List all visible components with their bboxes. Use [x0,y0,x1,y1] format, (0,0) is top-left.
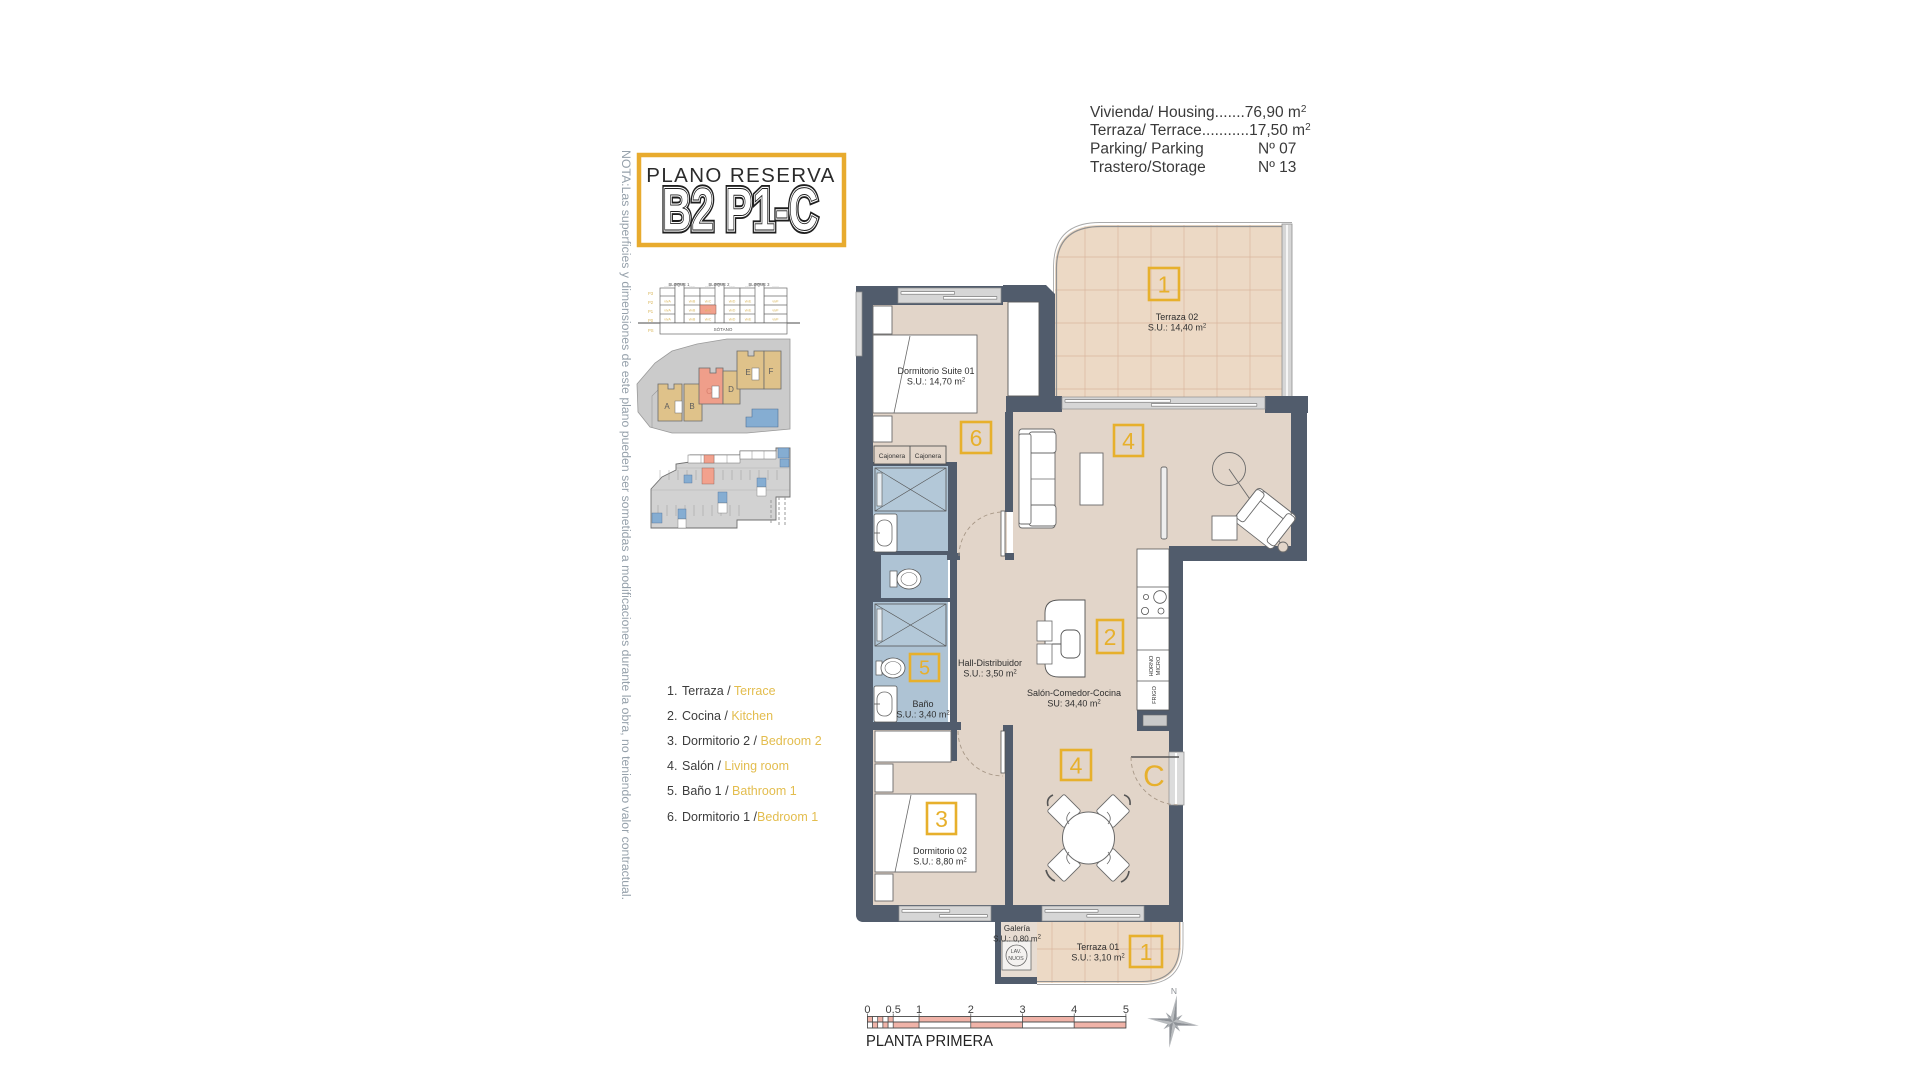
svg-text:vivD: vivD [729,300,736,304]
svg-text:vivF: vivF [772,309,778,313]
svg-text:Cajonera: Cajonera [915,453,942,460]
svg-text:5.: 5. [667,784,677,798]
svg-text:C: C [706,387,712,396]
svg-text:C: C [1143,760,1165,793]
svg-text:Terraza / Terrace: Terraza / Terrace [682,684,776,698]
svg-text:Baño: Baño [912,699,933,709]
svg-text:BLOQUE 3: BLOQUE 3 [749,282,771,287]
svg-text:MICRO: MICRO [1156,656,1162,675]
svg-text:.......: ....... [705,284,712,288]
svg-text:Vivienda/ Housing.......76,90: Vivienda/ Housing.......76,90 m2 [1090,104,1307,121]
svg-text:2: 2 [968,1004,974,1016]
svg-text:Salón-Comedor-Cocina: Salón-Comedor-Cocina [1027,688,1121,698]
svg-text:Terraza/ Terrace...........17,: Terraza/ Terrace...........17,50 m2 [1090,122,1311,139]
svg-text:HORNO: HORNO [1149,655,1155,676]
svg-text:S.U.: 14,70 m2: S.U.: 14,70 m2 [907,377,966,387]
svg-text:1: 1 [1158,271,1171,297]
svg-text:SU: 34,40 m2: SU: 34,40 m2 [1047,699,1101,709]
svg-text:3: 3 [935,806,948,832]
svg-text:0.5: 0.5 [886,1004,901,1016]
svg-text:vivA: vivA [664,309,671,313]
svg-text:vivE: vivE [745,318,752,322]
svg-text:Dormitorio 02: Dormitorio 02 [913,846,967,856]
svg-text:Trastero/Storage: Trastero/Storage [1090,159,1206,176]
svg-text:vivD: vivD [729,318,736,322]
svg-text:S.U.: 14,40 m2: S.U.: 14,40 m2 [1148,323,1207,333]
svg-text:vivC: vivC [705,318,712,322]
svg-text:Cajonera: Cajonera [879,453,906,460]
svg-text:PS: PS [648,328,654,333]
svg-text:.......: ....... [689,284,696,288]
svg-text:.......: ....... [772,284,779,288]
svg-text:2.: 2. [667,709,677,723]
svg-text:vivB: vivB [689,300,696,304]
svg-text:B2 P1-C: B2 P1-C [662,176,818,243]
svg-text:P0: P0 [648,318,654,323]
svg-text:NOTA:Las superficies y dimensi: NOTA:Las superficies y dimensiones de es… [619,150,633,900]
svg-text:vivF: vivF [772,300,778,304]
svg-text:1.: 1. [667,684,677,698]
svg-text:Salón / Living room: Salón / Living room [682,759,789,773]
svg-text:Terraza 01: Terraza 01 [1077,942,1120,952]
svg-text:B: B [689,402,694,411]
svg-text:P2: P2 [648,300,654,305]
svg-text:4: 4 [1122,428,1135,454]
svg-text:BLOQUE 1: BLOQUE 1 [669,282,691,287]
svg-text:6: 6 [970,425,983,451]
svg-text:vivA: vivA [664,300,671,304]
svg-text:P3: P3 [648,291,654,296]
svg-text:Parking/ Parking: Parking/ Parking [1090,141,1204,158]
svg-text:5: 5 [919,658,930,680]
svg-text:6.: 6. [667,810,677,824]
svg-text:vivB: vivB [689,309,696,313]
svg-text:S.U.: 3,10 m2: S.U.: 3,10 m2 [1071,953,1125,963]
svg-text:S.U.: 0,80 m2: S.U.: 0,80 m2 [993,935,1041,944]
svg-text:Dormitorio 1 /Bedroom 1: Dormitorio 1 /Bedroom 1 [682,810,818,824]
svg-text:FRIGO: FRIGO [1152,685,1158,703]
svg-text:N: N [1171,986,1177,996]
svg-text:.......: ....... [745,284,752,288]
svg-text:0: 0 [864,1004,870,1016]
svg-text:5: 5 [1123,1004,1129,1016]
svg-text:.......: ....... [664,284,671,288]
svg-text:S.U.: 8,80 m2: S.U.: 8,80 m2 [913,857,967,867]
svg-text:.......: ....... [729,284,736,288]
svg-text:Nº 13: Nº 13 [1258,159,1296,176]
svg-text:vivB: vivB [689,318,696,322]
svg-text:3.: 3. [667,734,677,748]
svg-text:Hall-Distribuidor: Hall-Distribuidor [958,658,1022,668]
svg-text:Terraza 02: Terraza 02 [1156,312,1199,322]
svg-text:4: 4 [1070,752,1083,778]
svg-text:E: E [745,368,750,377]
svg-text:Nº 07: Nº 07 [1258,141,1296,158]
svg-text:Cocina / Kitchen: Cocina / Kitchen [682,709,773,723]
svg-text:vivA: vivA [664,318,671,322]
svg-text:3: 3 [1019,1004,1025,1016]
svg-text:2: 2 [1104,624,1117,650]
svg-text:vivC: vivC [705,309,712,313]
svg-text:1: 1 [1140,939,1153,965]
svg-text:Dormitorio 2 / Bedroom 2: Dormitorio 2 / Bedroom 2 [682,734,822,748]
svg-text:vivD: vivD [729,309,736,313]
svg-text:F: F [769,367,774,376]
svg-text:PLANTA PRIMERA: PLANTA PRIMERA [866,1033,994,1050]
svg-text:P1: P1 [648,309,654,314]
svg-text:1: 1 [916,1004,922,1016]
svg-text:Dormitorio Suite 01: Dormitorio Suite 01 [897,366,974,376]
svg-text:S.U.: 3,50 m2: S.U.: 3,50 m2 [963,669,1017,679]
svg-text:vivE: vivE [745,300,752,304]
svg-text:vivF: vivF [772,318,778,322]
svg-text:Baño 1 / Bathroom 1: Baño 1 / Bathroom 1 [682,784,797,798]
svg-text:A: A [664,402,670,411]
svg-text:4.: 4. [667,759,677,773]
svg-text:SÓTANO: SÓTANO [714,326,733,332]
svg-text:4: 4 [1071,1004,1077,1016]
svg-text:LAV.: LAV. [1011,949,1022,955]
svg-text:NUOS: NUOS [1008,956,1024,962]
svg-text:Galería: Galería [1004,924,1031,933]
svg-text:vivC: vivC [705,300,712,304]
svg-text:BLOQUE 2: BLOQUE 2 [709,282,731,287]
svg-text:S.U.: 3,40 m2: S.U.: 3,40 m2 [896,710,950,720]
svg-text:vivE: vivE [745,309,752,313]
svg-text:D: D [728,385,734,394]
